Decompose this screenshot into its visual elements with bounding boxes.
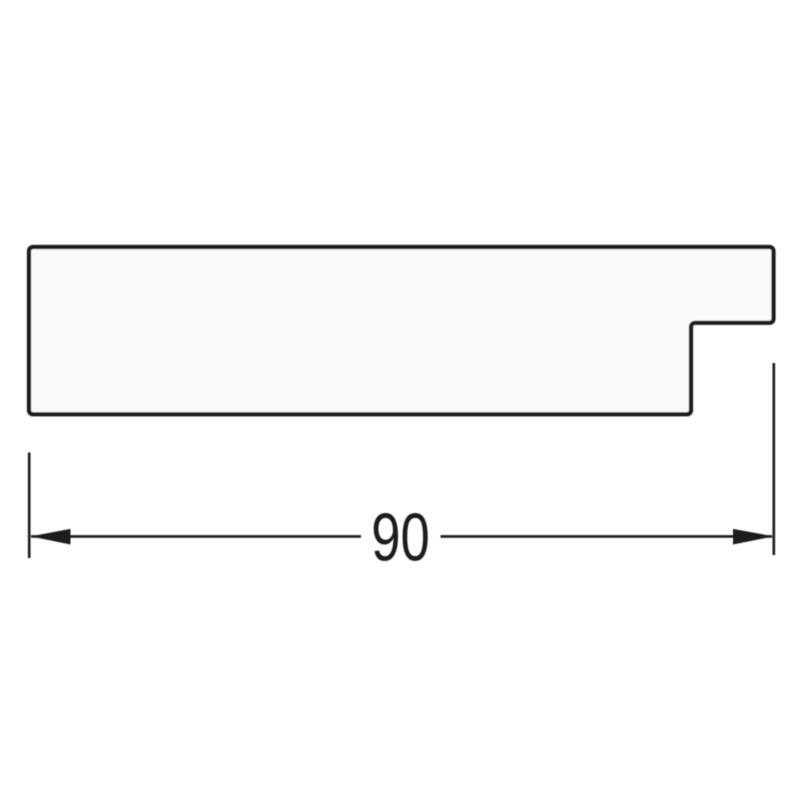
svg-text:90: 90 [371, 499, 430, 575]
